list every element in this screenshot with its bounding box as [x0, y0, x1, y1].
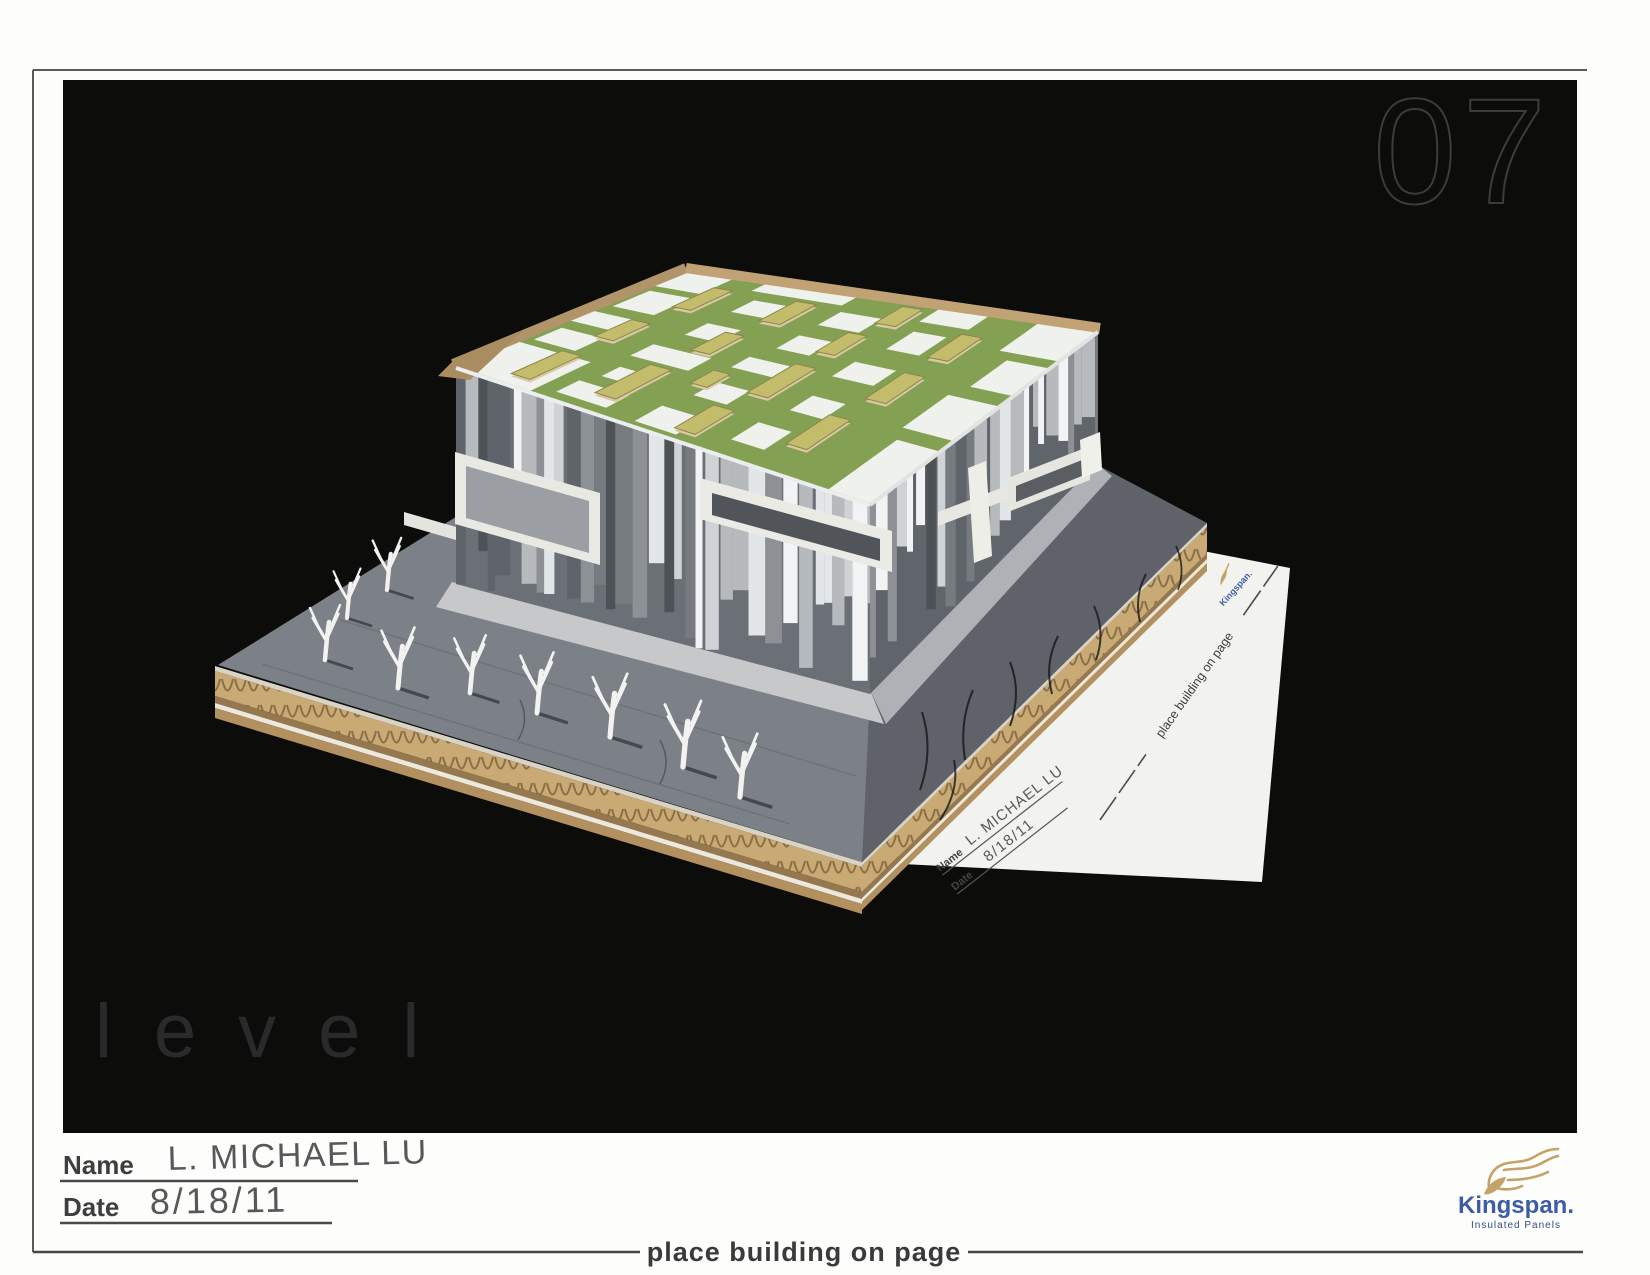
facade-stripe — [1046, 365, 1058, 436]
kingspan-tagline: Insulated Panels — [1471, 1220, 1561, 1231]
date-value: 8/18/11 — [149, 1179, 288, 1222]
footer-instruction: place building on page — [647, 1237, 962, 1267]
facade-stripe — [907, 471, 913, 552]
date-label: Date — [63, 1192, 119, 1222]
facade-stripe — [649, 426, 665, 564]
facade-stripe — [1058, 356, 1068, 441]
facade-stripe — [685, 438, 695, 638]
facade-stripe — [606, 411, 615, 609]
level-watermark: level — [95, 989, 461, 1074]
facade-stripe — [1038, 371, 1044, 444]
page-canvas: 07 level Kingspan. place building on pag… — [0, 0, 1650, 1275]
facade-stripe — [783, 470, 797, 623]
facade-stripe — [514, 381, 522, 481]
facade-stripe — [799, 475, 813, 668]
facade-stripe — [945, 442, 955, 607]
name-label: Name — [63, 1150, 134, 1180]
facade-stripe — [633, 420, 648, 618]
facade-stripe — [1068, 348, 1074, 468]
facade-stripe — [615, 414, 632, 604]
facade-stripe — [705, 444, 719, 650]
facade-stripe — [990, 408, 1000, 536]
facade-stripe — [749, 459, 766, 636]
facade-stripe — [664, 431, 674, 613]
photo-number: 07 — [1373, 67, 1552, 235]
facade-stripe — [1024, 382, 1029, 477]
facade-stripe — [1074, 344, 1082, 425]
kingspan-wordmark: Kingspan. — [1458, 1192, 1574, 1219]
facade-stripe — [916, 464, 925, 525]
facade-stripe — [926, 456, 935, 609]
facade-stripe — [765, 464, 782, 643]
name-value: L. MICHAEL LU — [167, 1133, 428, 1178]
corner-cap — [1080, 432, 1102, 478]
facade-stripe — [1082, 338, 1095, 417]
facade-stripe — [696, 441, 703, 648]
facade-stripe — [674, 434, 682, 579]
scanned-page: 07 level Kingspan. place building on pag… — [0, 0, 1650, 1275]
facade-stripe — [897, 479, 907, 547]
